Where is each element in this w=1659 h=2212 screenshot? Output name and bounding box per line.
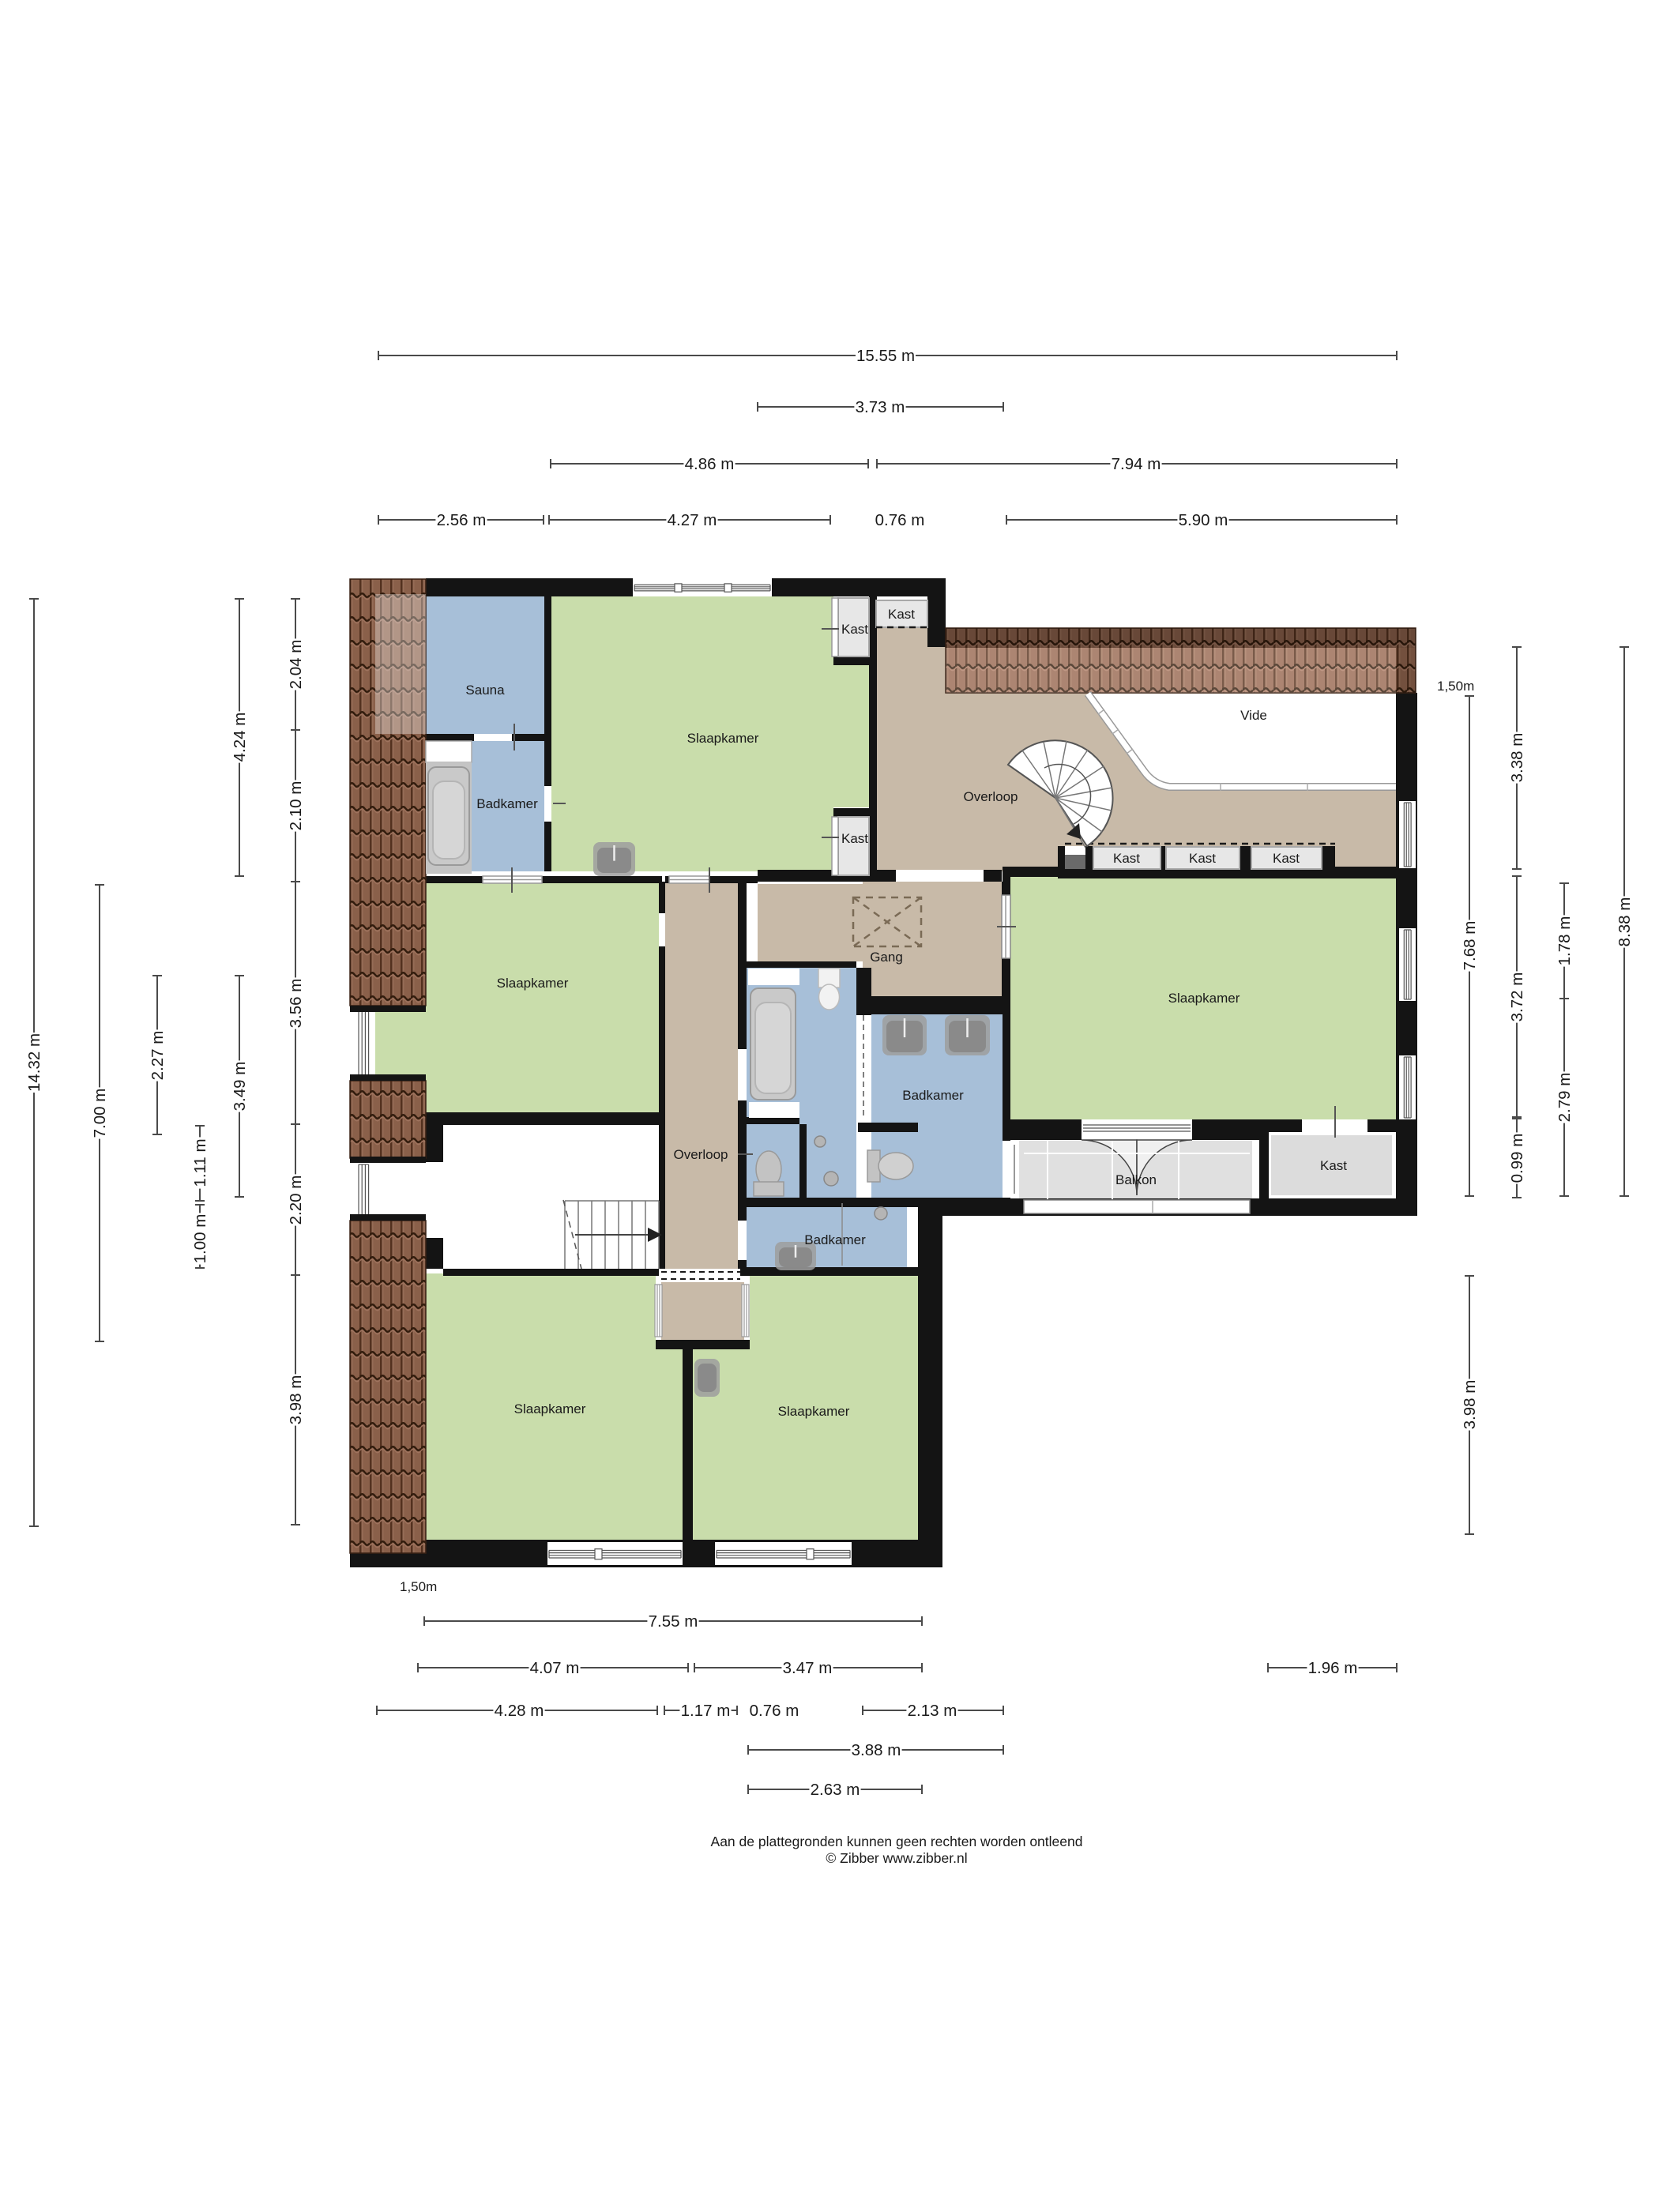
- svg-text:Slaapkamer: Slaapkamer: [778, 1404, 850, 1419]
- svg-text:1.11 m: 1.11 m: [191, 1138, 209, 1187]
- svg-text:7.00 m: 7.00 m: [91, 1089, 109, 1138]
- svg-text:2.13 m: 2.13 m: [908, 1702, 957, 1720]
- svg-text:Kast: Kast: [841, 831, 868, 846]
- svg-text:Badkamer: Badkamer: [476, 796, 538, 811]
- svg-text:Badkamer: Badkamer: [902, 1088, 964, 1103]
- svg-text:4.07 m: 4.07 m: [530, 1659, 580, 1677]
- svg-text:1.00 m: 1.00 m: [191, 1214, 209, 1264]
- svg-text:2.04 m: 2.04 m: [287, 640, 305, 690]
- svg-text:Sauna: Sauna: [465, 683, 505, 698]
- svg-text:Slaapkamer: Slaapkamer: [1168, 991, 1240, 1006]
- svg-text:2.79 m: 2.79 m: [1556, 1073, 1574, 1123]
- svg-text:Balkon: Balkon: [1115, 1172, 1157, 1187]
- svg-text:4.27 m: 4.27 m: [668, 511, 717, 529]
- svg-text:1.78 m: 1.78 m: [1556, 916, 1574, 966]
- svg-text:Aan de plattegronden kunnen ge: Aan de plattegronden kunnen geen rechten…: [711, 1834, 1083, 1849]
- svg-text:Kast: Kast: [1189, 851, 1216, 866]
- svg-text:0.76 m: 0.76 m: [875, 511, 925, 529]
- svg-text:Gang: Gang: [870, 950, 903, 965]
- svg-text:3.49 m: 3.49 m: [231, 1062, 249, 1112]
- svg-text:14.32 m: 14.32 m: [25, 1033, 43, 1092]
- svg-text:0.76 m: 0.76 m: [750, 1702, 799, 1720]
- svg-text:Badkamer: Badkamer: [804, 1232, 866, 1247]
- svg-text:Slaapkamer: Slaapkamer: [514, 1401, 586, 1416]
- svg-text:8.38 m: 8.38 m: [1616, 897, 1634, 947]
- svg-text:4.86 m: 4.86 m: [685, 455, 735, 473]
- svg-text:Overloop: Overloop: [964, 789, 1018, 804]
- svg-text:Vide: Vide: [1240, 708, 1267, 723]
- svg-text:3.98 m: 3.98 m: [287, 1375, 305, 1425]
- svg-text:3.72 m: 3.72 m: [1508, 972, 1526, 1022]
- svg-text:Kast: Kast: [1320, 1158, 1347, 1173]
- svg-text:4.28 m: 4.28 m: [495, 1702, 544, 1720]
- svg-text:7.94 m: 7.94 m: [1112, 455, 1161, 473]
- svg-text:2.63 m: 2.63 m: [811, 1781, 860, 1799]
- svg-text:© Zibber www.zibber.nl: © Zibber www.zibber.nl: [826, 1850, 967, 1866]
- svg-text:2.10 m: 2.10 m: [287, 781, 305, 831]
- svg-text:1.96 m: 1.96 m: [1308, 1659, 1358, 1677]
- svg-text:Kast: Kast: [1273, 851, 1300, 866]
- svg-text:1,50m: 1,50m: [400, 1579, 437, 1594]
- svg-text:Kast: Kast: [1113, 851, 1140, 866]
- svg-text:2.20 m: 2.20 m: [287, 1176, 305, 1225]
- svg-text:3.73 m: 3.73 m: [856, 398, 905, 416]
- svg-text:2.56 m: 2.56 m: [437, 511, 487, 529]
- svg-text:7.55 m: 7.55 m: [649, 1612, 698, 1631]
- svg-text:Kast: Kast: [841, 622, 868, 637]
- svg-text:Kast: Kast: [888, 607, 915, 622]
- svg-text:Overloop: Overloop: [674, 1147, 728, 1162]
- svg-text:4.24 m: 4.24 m: [231, 713, 249, 762]
- svg-text:1.17 m: 1.17 m: [681, 1702, 731, 1720]
- svg-text:7.68 m: 7.68 m: [1461, 921, 1479, 971]
- svg-text:Slaapkamer: Slaapkamer: [497, 976, 569, 991]
- svg-text:5.90 m: 5.90 m: [1179, 511, 1228, 529]
- svg-text:3.47 m: 3.47 m: [783, 1659, 833, 1677]
- svg-text:Slaapkamer: Slaapkamer: [687, 731, 759, 746]
- svg-text:3.38 m: 3.38 m: [1508, 733, 1526, 783]
- svg-text:3.56 m: 3.56 m: [287, 979, 305, 1029]
- svg-text:1,50m: 1,50m: [1437, 679, 1474, 694]
- svg-text:15.55 m: 15.55 m: [856, 347, 915, 365]
- svg-text:2.27 m: 2.27 m: [149, 1031, 167, 1081]
- svg-text:0.99 m: 0.99 m: [1508, 1134, 1526, 1183]
- svg-text:3.98 m: 3.98 m: [1461, 1380, 1479, 1430]
- svg-text:3.88 m: 3.88 m: [852, 1741, 901, 1759]
